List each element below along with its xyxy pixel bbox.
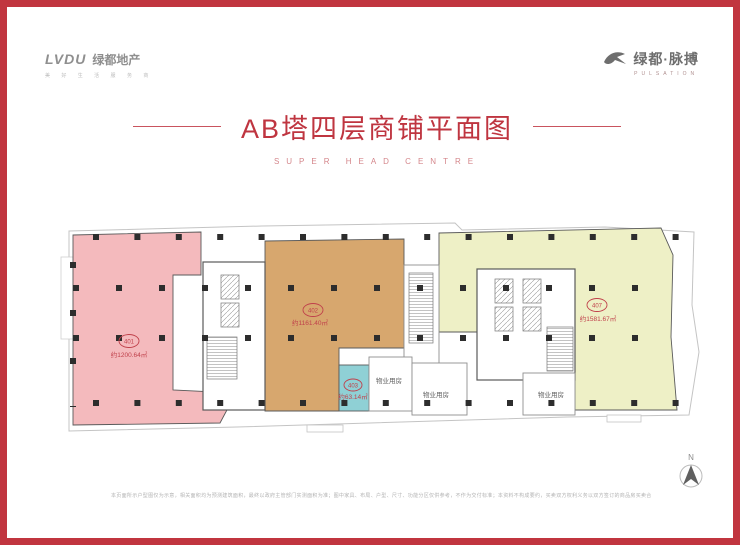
entrance-step — [307, 425, 343, 432]
svg-text:约63.14㎡: 约63.14㎡ — [338, 392, 368, 401]
property-room-label: 物业用房 — [538, 390, 564, 399]
left-alcove — [61, 257, 73, 339]
entrance-step — [607, 415, 641, 422]
svg-text:402: 402 — [308, 309, 319, 315]
disclaimer-text: 本页面所示户型图仅为示意，相关面积均为预测建筑面积，最终以政府主管部门实测面积为… — [111, 492, 651, 499]
svg-text:403: 403 — [348, 384, 359, 390]
svg-text:407: 407 — [592, 304, 603, 310]
page: LVDU 绿都地产 美 好 生 活 服 务 商 绿都·脉搏 PULSATION … — [0, 0, 740, 545]
north-arrow-icon: N — [680, 453, 702, 487]
svg-text:401: 401 — [124, 340, 135, 346]
floor-plan: 401 约1200.64㎡ 402 约1161.40㎡ 403 约63.14㎡ … — [7, 7, 740, 545]
svg-text:N: N — [688, 453, 694, 462]
property-room-label: 物业用房 — [423, 390, 449, 399]
svg-text:约1200.64㎡: 约1200.64㎡ — [111, 350, 148, 359]
svg-text:约1581.67㎡: 约1581.67㎡ — [580, 314, 617, 323]
property-room-label: 物业用房 — [376, 376, 402, 385]
property-room-2 — [412, 363, 467, 415]
svg-text:约1161.40㎡: 约1161.40㎡ — [292, 318, 329, 327]
